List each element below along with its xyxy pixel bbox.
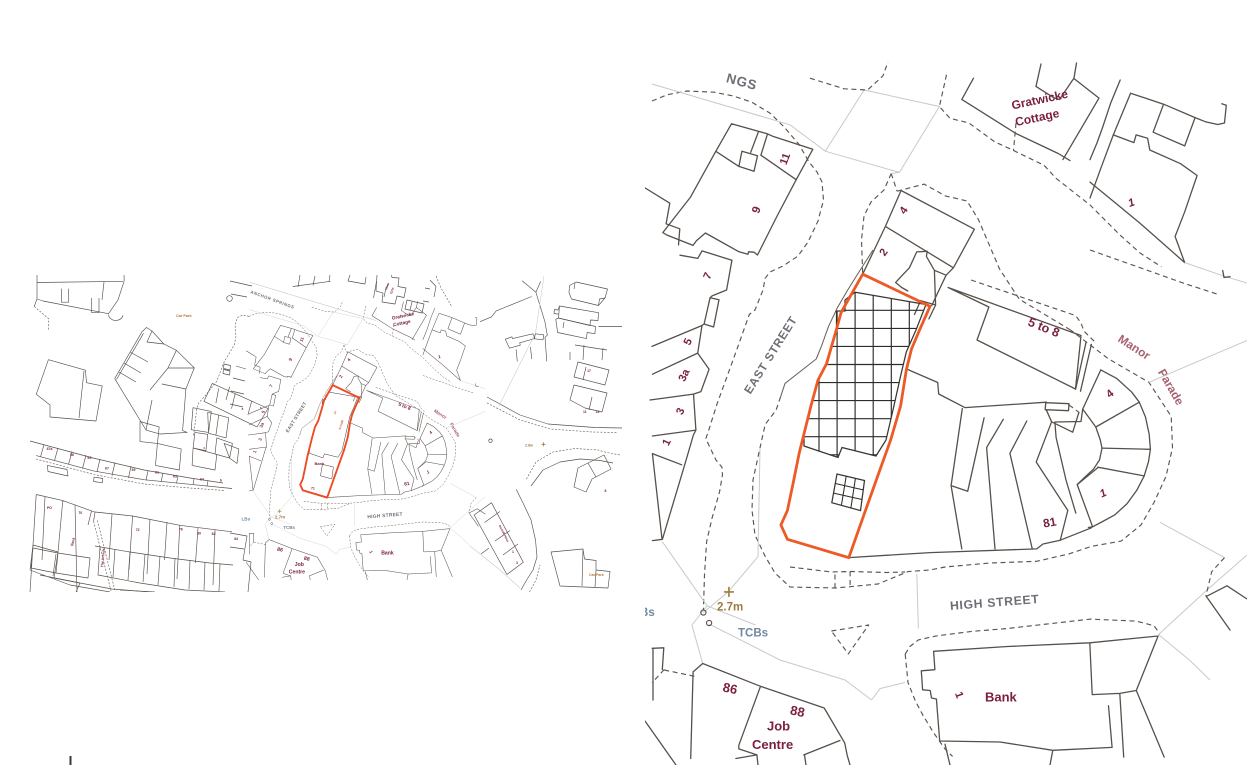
svg-text:Car Park: Car Park <box>176 314 193 318</box>
svg-text:59: 59 <box>132 468 136 472</box>
svg-text:84: 84 <box>234 537 238 541</box>
svg-text:67: 67 <box>105 467 109 471</box>
svg-text:Bank: Bank <box>70 537 76 546</box>
svg-text:Car Park: Car Park <box>589 573 604 577</box>
svg-text:11: 11 <box>583 410 587 414</box>
svg-text:PO: PO <box>47 506 52 510</box>
svg-text:66: 66 <box>70 453 74 457</box>
svg-text:Bank: Bank <box>315 461 326 466</box>
svg-text:6: 6 <box>260 406 262 410</box>
svg-text:Grin: Grin <box>389 287 395 295</box>
svg-text:3: 3 <box>516 561 518 565</box>
svg-text:72: 72 <box>136 528 140 532</box>
svg-text:The Arcade: The Arcade <box>100 548 106 567</box>
svg-text:63: 63 <box>173 475 177 479</box>
svg-text:13: 13 <box>596 410 600 414</box>
svg-text:71: 71 <box>311 486 315 490</box>
svg-text:ANCHOR SPRINGS: ANCHOR SPRINGS <box>250 289 295 310</box>
svg-text:2.8m: 2.8m <box>525 444 533 448</box>
svg-text:82: 82 <box>212 532 216 536</box>
svg-text:8: 8 <box>242 407 244 411</box>
svg-text:67a: 67a <box>47 447 53 451</box>
svg-text:80: 80 <box>197 532 201 536</box>
svg-text:76: 76 <box>179 528 183 532</box>
svg-text:61: 61 <box>155 471 159 475</box>
svg-text:b: b <box>220 479 222 483</box>
svg-text:64: 64 <box>200 478 204 482</box>
svg-text:8: 8 <box>604 489 606 493</box>
svg-text:NGS: NGS <box>725 70 759 93</box>
svg-text:1: 1 <box>512 550 514 554</box>
svg-text:4: 4 <box>203 446 205 450</box>
svg-text:65: 65 <box>88 456 92 460</box>
svg-text:70: 70 <box>78 511 82 515</box>
svg-text:Ar: Ar <box>333 410 338 415</box>
svg-text:Arcade: Arcade <box>338 419 345 430</box>
svg-text:17: 17 <box>587 369 591 373</box>
